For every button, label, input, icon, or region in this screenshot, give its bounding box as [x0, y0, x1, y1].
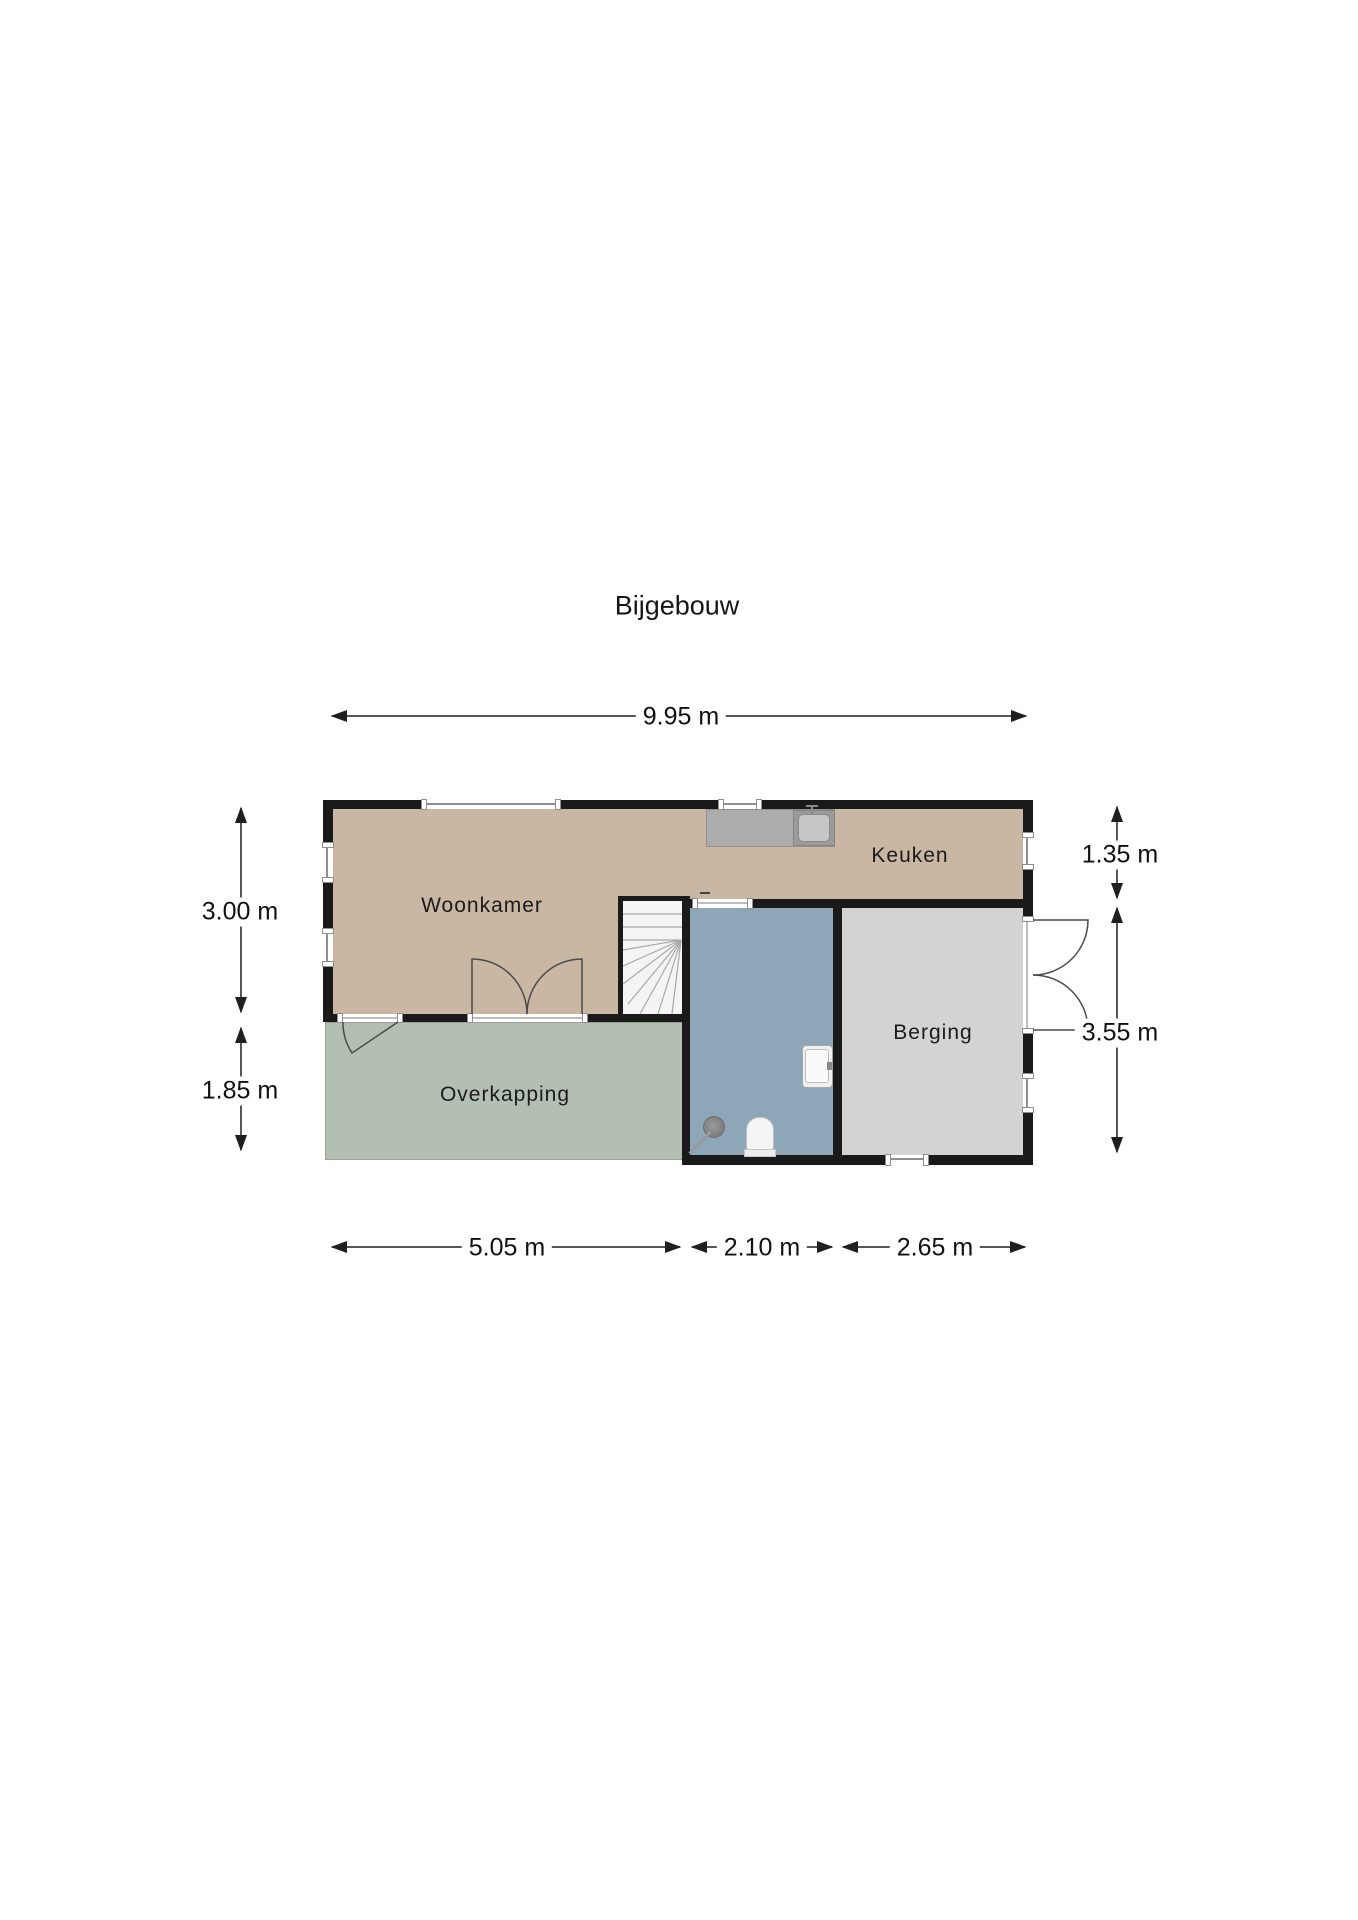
room-label-overkapping: Overkapping: [440, 1083, 570, 1107]
berging-door-upper-swing: [1033, 920, 1088, 975]
wall-left: [323, 800, 333, 1022]
page-title: Bijgebouw: [615, 591, 740, 622]
room-label-woonkamer: Woonkamer: [421, 894, 543, 918]
kitchen-faucet-stem: [811, 805, 813, 814]
dim-label-bottom-right: 2.65 m: [890, 1234, 980, 1263]
room-label-keuken: Keuken: [871, 844, 948, 868]
dim-label-total-width: 9.95 m: [636, 703, 726, 732]
door-opening-berging: [1023, 916, 1033, 1034]
bathroom-sink-basin: [805, 1049, 829, 1083]
window-right-kitchen: [1023, 832, 1033, 870]
room-label-berging: Berging: [893, 1021, 972, 1045]
window-bottom-berging: [885, 1155, 929, 1165]
window-left-upper: [323, 842, 333, 883]
shower-head: [703, 1116, 725, 1138]
door-opening-bathroom: [692, 899, 753, 908]
wall-bottom: [682, 1155, 1033, 1165]
wall-bathroom-berging: [833, 908, 842, 1165]
stairs-border-top: [618, 896, 690, 901]
staircase: [623, 901, 682, 1014]
door-opening-french: [467, 1014, 588, 1022]
dim-label-right-top: 1.35 m: [1075, 841, 1165, 870]
wall-bathroom-left: [682, 899, 690, 1165]
window-left-lower: [323, 928, 333, 967]
dim-label-bottom-middle: 2.10 m: [717, 1234, 807, 1263]
window-top-kitchen: [718, 800, 762, 809]
floor-plan-page: Bijgebouw: [0, 0, 1358, 1920]
window-right-berging: [1023, 1073, 1033, 1113]
stairs-border-left: [618, 896, 623, 1022]
door-opening-overkapping: [337, 1014, 403, 1022]
dim-label-left-bottom: 1.85 m: [195, 1077, 285, 1106]
kitchen-sink-basin: [798, 814, 830, 842]
dim-label-bottom-left: 5.05 m: [462, 1234, 552, 1263]
window-top-living: [421, 800, 561, 809]
dim-label-left-top: 3.00 m: [195, 898, 285, 927]
toilet-cistern: [744, 1149, 776, 1157]
toilet-bowl: [746, 1117, 774, 1151]
dim-label-right-bottom: 3.55 m: [1075, 1019, 1165, 1048]
bathroom-faucet: [827, 1062, 832, 1070]
